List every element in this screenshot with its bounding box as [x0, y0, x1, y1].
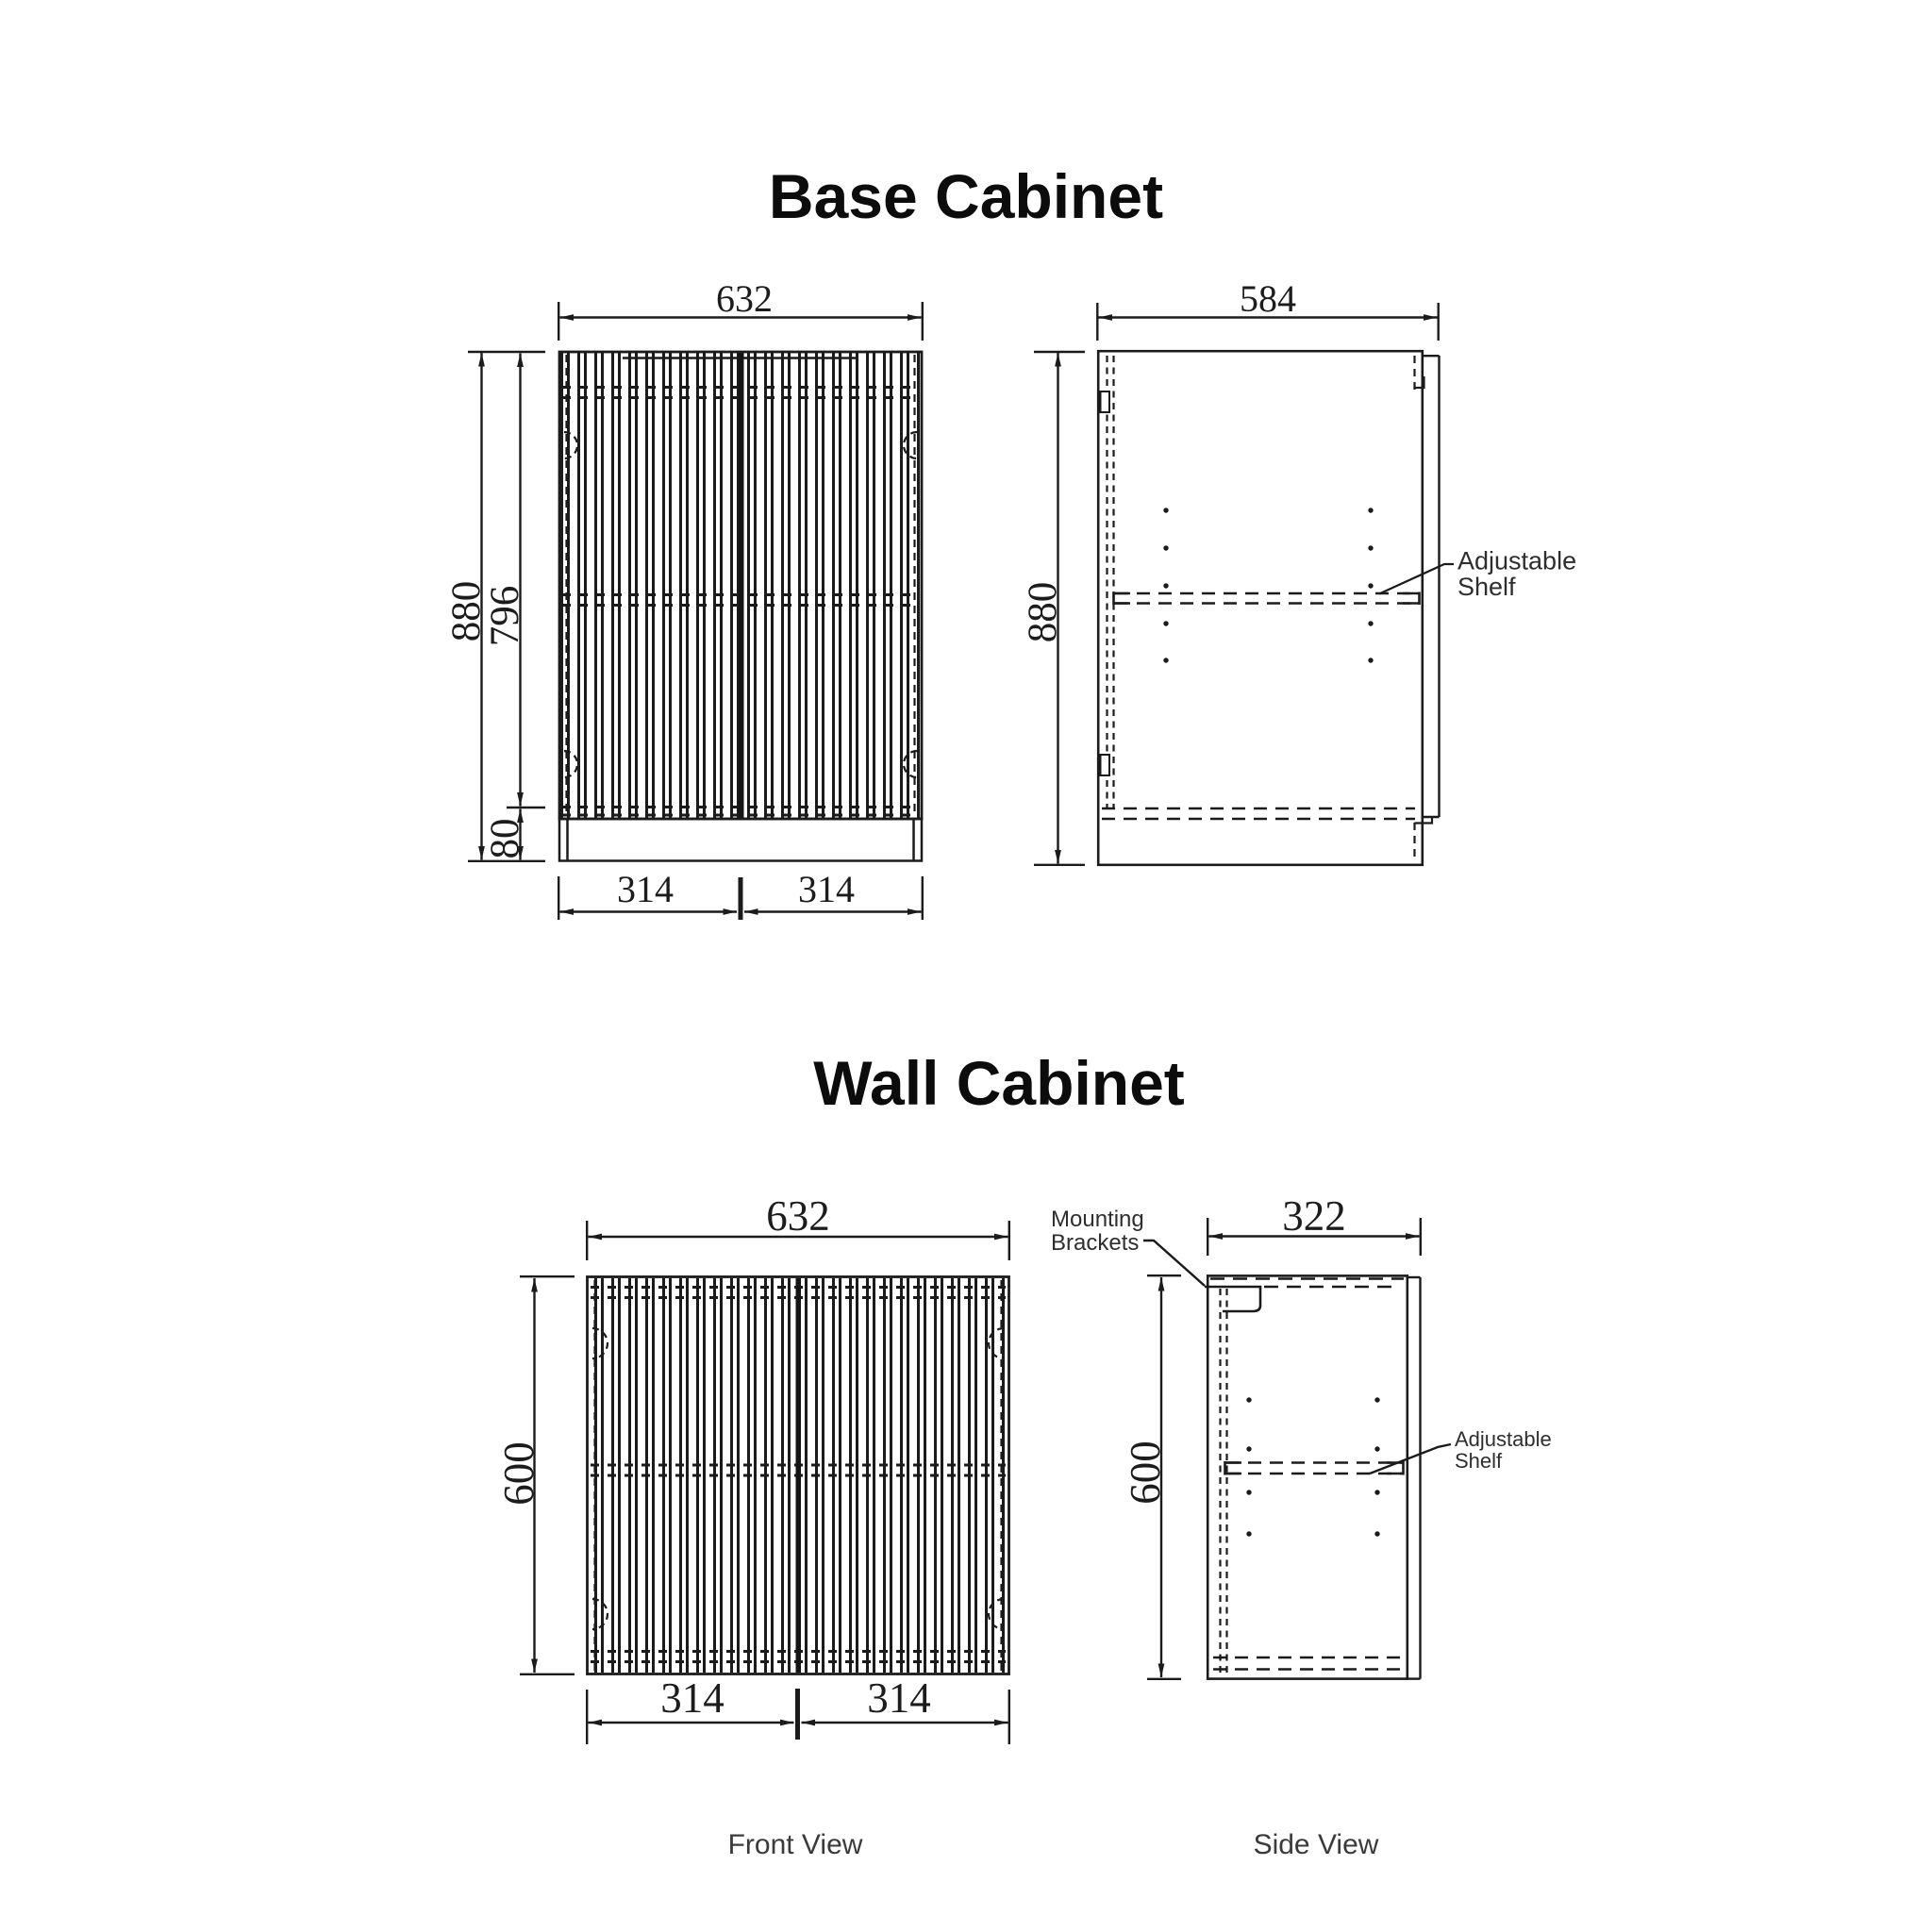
svg-text:314: 314 — [617, 868, 674, 910]
svg-text:322: 322 — [1282, 1192, 1346, 1240]
svg-text:314: 314 — [867, 1674, 931, 1722]
svg-text:Brackets: Brackets — [1051, 1230, 1139, 1256]
svg-text:880: 880 — [1021, 582, 1065, 643]
svg-text:796: 796 — [483, 586, 527, 647]
svg-text:Adjustable: Adjustable — [1455, 1427, 1552, 1451]
svg-text:632: 632 — [716, 277, 773, 320]
svg-text:314: 314 — [798, 868, 855, 910]
svg-text:Wall Cabinet: Wall Cabinet — [813, 1048, 1185, 1118]
svg-text:600: 600 — [1122, 1441, 1169, 1505]
svg-text:314: 314 — [660, 1674, 724, 1722]
svg-text:Side View: Side View — [1254, 1829, 1379, 1860]
svg-text:Front View: Front View — [728, 1829, 863, 1860]
svg-text:Shelf: Shelf — [1457, 573, 1516, 601]
svg-text:880: 880 — [444, 581, 489, 642]
svg-text:584: 584 — [1240, 277, 1296, 320]
svg-text:80: 80 — [483, 819, 527, 859]
svg-text:600: 600 — [495, 1441, 542, 1506]
svg-text:Base Cabinet: Base Cabinet — [769, 161, 1163, 231]
svg-text:632: 632 — [766, 1192, 830, 1240]
svg-text:Adjustable: Adjustable — [1457, 547, 1576, 575]
svg-text:Mounting: Mounting — [1051, 1207, 1144, 1232]
svg-text:Shelf: Shelf — [1455, 1449, 1503, 1473]
